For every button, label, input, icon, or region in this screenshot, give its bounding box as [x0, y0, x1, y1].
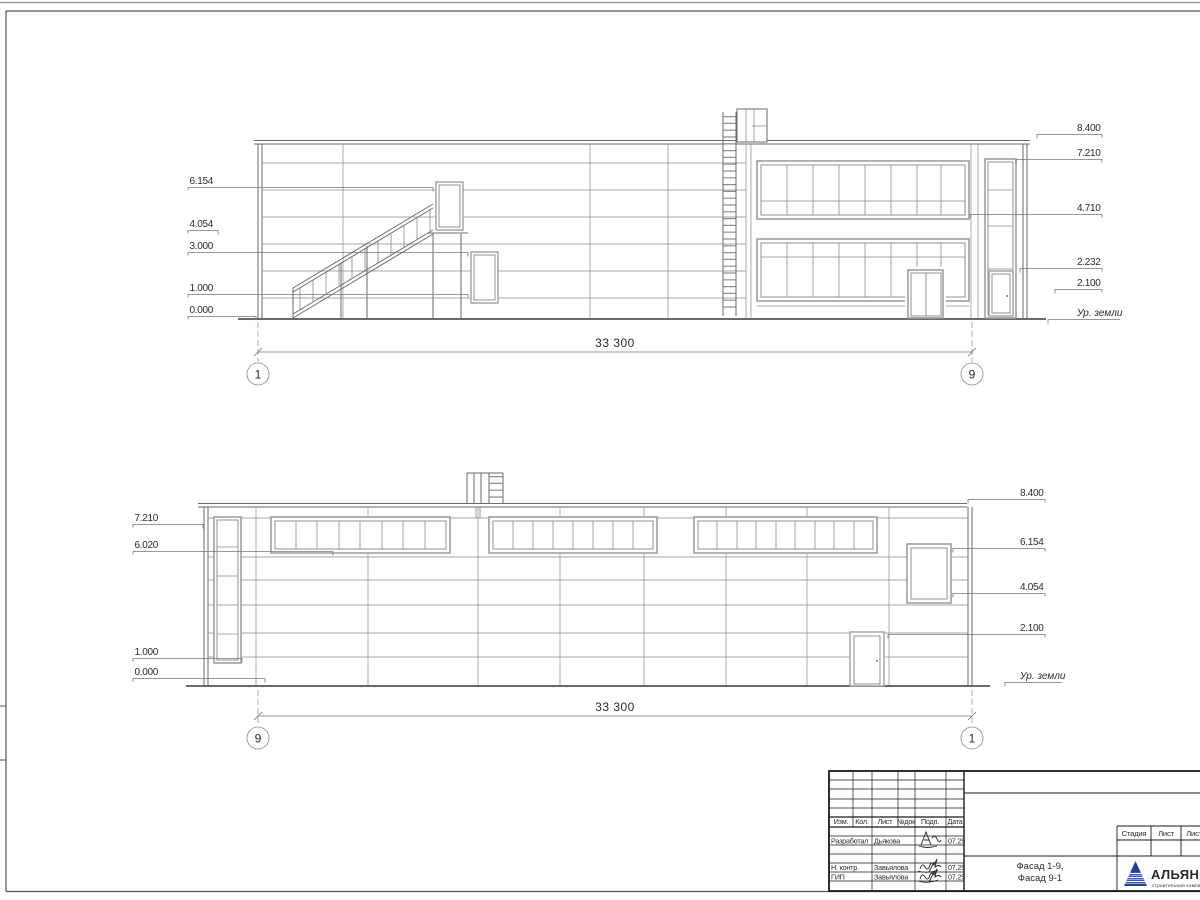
- tb-col-data: Дата: [947, 817, 962, 826]
- elevation-label: 4.710: [1077, 203, 1101, 214]
- drawing-title-line1: Фасад 1-9,: [1016, 861, 1063, 872]
- dimension-value: 33 300: [595, 336, 635, 350]
- elevation-label: 3.000: [189, 241, 213, 252]
- tb-name: Завьялова: [874, 863, 908, 872]
- axis-bubble-1: 1: [969, 732, 976, 746]
- elevation-label: 2.232: [1077, 257, 1101, 268]
- tb-col-izm: Изм.: [834, 817, 849, 826]
- parapet-line: [198, 504, 967, 508]
- ground-level-label: Ур. земли: [1019, 671, 1066, 682]
- tb-col-list: Лист: [878, 817, 894, 826]
- logo-tagline: строительная компания: [1152, 884, 1200, 889]
- tb-col-podp: Подп.: [921, 817, 939, 826]
- elevation-label: 8.400: [1020, 488, 1044, 499]
- parapet-line: [254, 141, 1030, 145]
- elevation-label: 6.154: [1020, 537, 1044, 548]
- axis-bubble-1: 1: [255, 368, 262, 382]
- dimension-bottom: [247, 690, 983, 749]
- ribbon-window-band-2: [489, 517, 657, 553]
- elevation-label: 4.054: [1020, 582, 1044, 593]
- elevation-label: 8.400: [1077, 123, 1101, 134]
- signature-nkontr: [918, 859, 941, 872]
- stair-stringer: [293, 230, 433, 318]
- right-window: [907, 544, 951, 603]
- service-door: [850, 632, 884, 686]
- dimension-value: 33 300: [595, 700, 635, 714]
- elevation-label: 2.100: [1077, 278, 1101, 289]
- tb-role: Разработал: [831, 837, 868, 846]
- elevation-label: 0.000: [189, 305, 213, 316]
- panel-lines: [262, 163, 746, 298]
- axis-bubble-9: 9: [969, 368, 976, 382]
- drawing-title-line2: Фасад 9-1: [1018, 873, 1062, 884]
- tb-col-ndok: №док: [897, 817, 916, 826]
- elevation-label: 6.020: [134, 540, 158, 551]
- upper-window-band: [757, 161, 969, 219]
- axis-bubble-9: 9: [255, 732, 262, 746]
- elevation-label: 7.210: [1077, 148, 1101, 159]
- elevation-label: 1.000: [189, 283, 213, 294]
- tb-role: ГИП: [831, 873, 845, 882]
- elevation-label: 6.154: [189, 176, 213, 187]
- elevation-label: 4.054: [189, 219, 213, 230]
- ribbon-window-band-3: [694, 517, 877, 553]
- tb-sheets-total: Листов: [1186, 829, 1200, 838]
- left-glazed-strip: [214, 517, 241, 663]
- drawing-frame: [0, 11, 1200, 892]
- title-block: Изм. Кол. Лист №док Подп. Дата Разработа…: [829, 771, 1200, 891]
- tb-name: Дьякова: [874, 837, 900, 846]
- elevation-label: 2.100: [1020, 623, 1044, 634]
- roof-ladder-structure: [467, 473, 503, 518]
- logo-company-name: АЛЬЯНС: [1151, 867, 1200, 882]
- facade-9-1: 33 300 9 1 7.210 6.020 1.000 0.000 8.400…: [133, 473, 1066, 749]
- stair-tower: [985, 159, 1016, 318]
- entrance-double-door: [905, 267, 946, 318]
- facade-drawing-canvas: 33 300 1 9 6.154 4.054 3.000 1.000 0.000…: [0, 0, 1200, 900]
- company-logo: АЛЬЯНС строительная компания: [1122, 861, 1200, 889]
- stair-door: [436, 182, 463, 230]
- tower-door: [989, 271, 1013, 316]
- tb-date: 07.25: [948, 837, 965, 846]
- tb-role: Н. контр.: [831, 863, 859, 872]
- ground-level-label: Ур. земли: [1076, 308, 1123, 319]
- tb-col-kol: Кол.: [855, 817, 869, 826]
- stair-posts: [293, 233, 468, 318]
- elevation-label: 1.000: [134, 647, 158, 658]
- facade-1-9: 33 300 1 9 6.154 4.054 3.000 1.000 0.000…: [188, 109, 1123, 385]
- drawing-sheet: 33 300 1 9 6.154 4.054 3.000 1.000 0.000…: [0, 0, 1200, 900]
- elevation-marks-left: [188, 188, 468, 321]
- dimension-top: [247, 322, 983, 385]
- tb-date: 07.25: [948, 873, 965, 882]
- tb-name: Завьялова: [874, 873, 908, 882]
- elevation-label: 0.000: [134, 667, 158, 678]
- ribbon-window-band-1: [271, 517, 450, 553]
- elevation-label: 7.210: [134, 513, 158, 524]
- tb-stage: Стадия: [1122, 829, 1147, 838]
- tb-sheet: Лист: [1158, 829, 1174, 838]
- tb-date: 07.25: [948, 863, 965, 872]
- left-window: [471, 252, 498, 303]
